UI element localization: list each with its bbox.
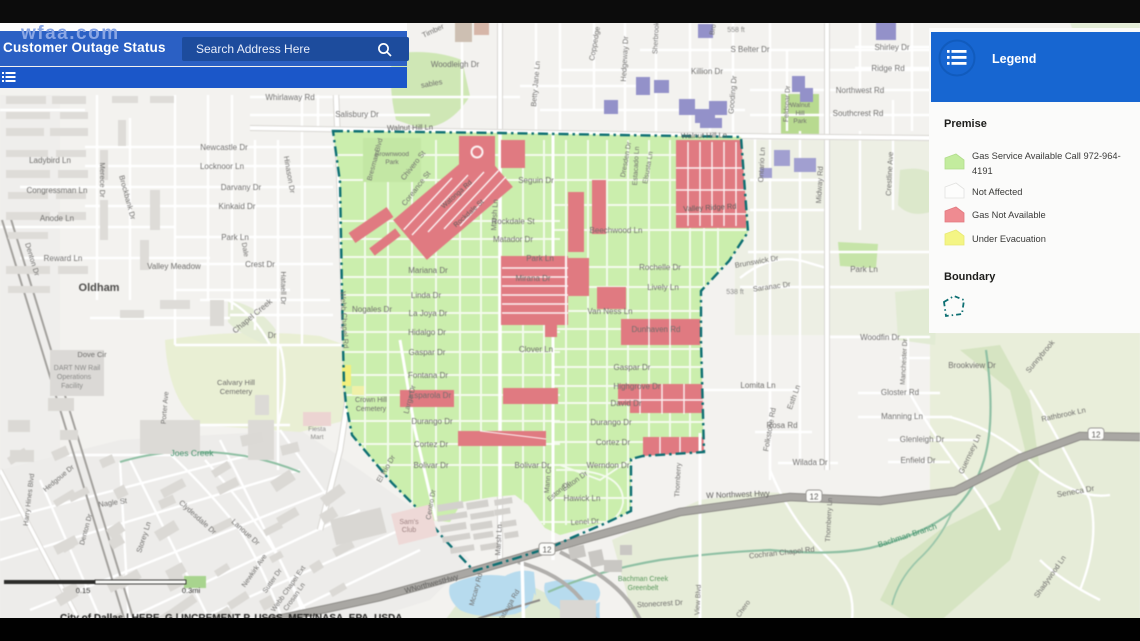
svg-text:Cemetery: Cemetery: [356, 406, 387, 413]
svg-text:Dr: Dr: [268, 331, 277, 340]
svg-text:Fontana Dr: Fontana Dr: [408, 371, 448, 380]
svg-text:Ridge Rd: Ridge Rd: [871, 64, 904, 73]
svg-text:Joes Creek: Joes Creek: [171, 448, 215, 458]
svg-text:Dove Cir: Dove Cir: [77, 350, 107, 359]
svg-text:Calvary Hill: Calvary Hill: [217, 378, 255, 387]
svg-text:Seguin Dr: Seguin Dr: [518, 176, 554, 185]
svg-text:Mariana Dr: Mariana Dr: [408, 266, 448, 275]
svg-text:Beechwood Ln: Beechwood Ln: [590, 226, 643, 235]
svg-text:Greenbelt: Greenbelt: [628, 585, 659, 592]
svg-text:Park Ln: Park Ln: [221, 233, 249, 242]
svg-text:Lomita Ln: Lomita Ln: [740, 381, 775, 390]
svg-text:Gloster Rd: Gloster Rd: [881, 388, 919, 397]
svg-text:Congressman Ln: Congressman Ln: [27, 186, 88, 195]
svg-text:Shirley Dr: Shirley Dr: [874, 43, 909, 52]
svg-text:Enfield Dr: Enfield Dr: [900, 456, 935, 465]
svg-text:Glenleigh Dr: Glenleigh Dr: [900, 435, 945, 444]
svg-text:Dunhaven Rd: Dunhaven Rd: [632, 325, 681, 334]
svg-text:Ontario Ln: Ontario Ln: [756, 147, 767, 182]
svg-text:Walnut Hill Ln: Walnut Hill Ln: [387, 123, 433, 133]
svg-text:558 ft: 558 ft: [727, 27, 745, 34]
svg-text:S Belter Dr: S Belter Dr: [730, 45, 769, 54]
svg-text:Park: Park: [385, 159, 399, 166]
svg-text:Valley Meadow: Valley Meadow: [147, 262, 201, 271]
svg-text:Matador Dr: Matador Dr: [493, 235, 533, 244]
svg-text:Walnut Hill Ln: Walnut Hill Ln: [681, 131, 727, 141]
svg-text:Reward Ln: Reward Ln: [44, 254, 83, 263]
svg-text:Northwest Rd: Northwest Rd: [836, 86, 884, 95]
svg-text:Linda Dr: Linda Dr: [411, 291, 442, 300]
svg-text:Cortez Dr: Cortez Dr: [596, 438, 631, 447]
svg-text:Whirlaway Rd: Whirlaway Rd: [265, 93, 314, 102]
svg-text:Gaspar Dr: Gaspar Dr: [409, 348, 446, 357]
svg-text:0.3mi: 0.3mi: [182, 586, 201, 595]
svg-text:Manning Ln: Manning Ln: [881, 412, 923, 421]
svg-text:Fiesta: Fiesta: [308, 426, 326, 433]
svg-text:Walnut: Walnut: [790, 102, 810, 109]
svg-text:Marsh Ln: Marsh Ln: [489, 199, 500, 231]
svg-text:Ladybird Ln: Ladybird Ln: [29, 156, 71, 165]
svg-text:Mart: Mart: [311, 434, 324, 441]
svg-text:Newcastle Dr: Newcastle Dr: [200, 143, 248, 152]
svg-text:Lively Ln: Lively Ln: [647, 283, 679, 292]
svg-text:Kinkaid Dr: Kinkaid Dr: [219, 202, 256, 211]
svg-text:Van Ness Ln: Van Ness Ln: [587, 307, 632, 316]
svg-text:538 ft: 538 ft: [726, 289, 744, 296]
svg-text:Hataell Dr: Hataell Dr: [279, 271, 288, 305]
svg-text:Merece Dr: Merece Dr: [98, 162, 107, 198]
svg-text:Werndon Dr: Werndon Dr: [587, 461, 630, 470]
svg-text:12: 12: [1092, 431, 1101, 440]
svg-text:DART NW Rail: DART NW Rail: [54, 365, 101, 372]
svg-text:Cemetery: Cemetery: [220, 387, 253, 396]
svg-text:Crest Dr: Crest Dr: [245, 260, 275, 269]
svg-text:Bolivar Dr: Bolivar Dr: [413, 461, 448, 470]
svg-text:Southcrest Rd: Southcrest Rd: [833, 109, 884, 118]
svg-text:Sam's: Sam's: [399, 519, 419, 526]
svg-text:Club: Club: [402, 527, 417, 534]
svg-text:Hawick Ln: Hawick Ln: [564, 494, 601, 503]
svg-text:La Joya Dr: La Joya Dr: [409, 309, 448, 318]
svg-text:Bachman Creek: Bachman Creek: [618, 576, 669, 583]
svg-text:Operations: Operations: [57, 374, 92, 381]
svg-text:Gaspar Dr: Gaspar Dr: [614, 363, 651, 372]
svg-text:Hidalgo Dr: Hidalgo Dr: [408, 328, 446, 337]
svg-text:Park: Park: [793, 118, 807, 125]
svg-text:Anode Ln: Anode Ln: [40, 214, 74, 223]
svg-text:Hill: Hill: [795, 110, 805, 117]
svg-text:Locknoor Ln: Locknoor Ln: [200, 162, 244, 171]
svg-text:Park Ln: Park Ln: [526, 254, 554, 263]
svg-text:Marsh Ln: Marsh Ln: [493, 524, 504, 556]
svg-text:Oldham: Oldham: [79, 282, 120, 294]
svg-text:Killion Dr: Killion Dr: [691, 67, 723, 76]
svg-text:12: 12: [543, 546, 552, 555]
svg-text:Highgrove Dr: Highgrove Dr: [613, 382, 660, 391]
svg-text:Brookview Dr: Brookview Dr: [948, 361, 996, 370]
svg-text:Crown Hill: Crown Hill: [355, 397, 387, 404]
svg-text:Nogales Dr: Nogales Dr: [352, 305, 392, 314]
svg-text:Facility: Facility: [61, 383, 83, 390]
svg-text:Mirana Dr: Mirana Dr: [515, 274, 550, 283]
svg-text:Wilada Dr: Wilada Dr: [792, 458, 827, 467]
svg-text:Durango Dr: Durango Dr: [590, 418, 632, 427]
svg-text:12: 12: [810, 493, 819, 502]
svg-text:Rosa Rd: Rosa Rd: [766, 421, 797, 430]
svg-text:Cortez Dr: Cortez Dr: [414, 440, 449, 449]
svg-text:Park Ln: Park Ln: [850, 265, 878, 274]
svg-text:Clover Ln: Clover Ln: [519, 345, 553, 354]
svg-text:Darvany Dr: Darvany Dr: [221, 183, 262, 192]
svg-text:Woodfin Dr: Woodfin Dr: [860, 333, 900, 342]
svg-text:Durango Dr: Durango Dr: [411, 417, 453, 426]
svg-text:Woodleigh Dr: Woodleigh Dr: [431, 60, 480, 69]
svg-text:Salisbury Dr: Salisbury Dr: [335, 110, 379, 119]
svg-text:0.15: 0.15: [76, 586, 91, 595]
svg-text:Rochelle Dr: Rochelle Dr: [639, 263, 681, 272]
svg-text:David Dr: David Dr: [610, 399, 641, 408]
